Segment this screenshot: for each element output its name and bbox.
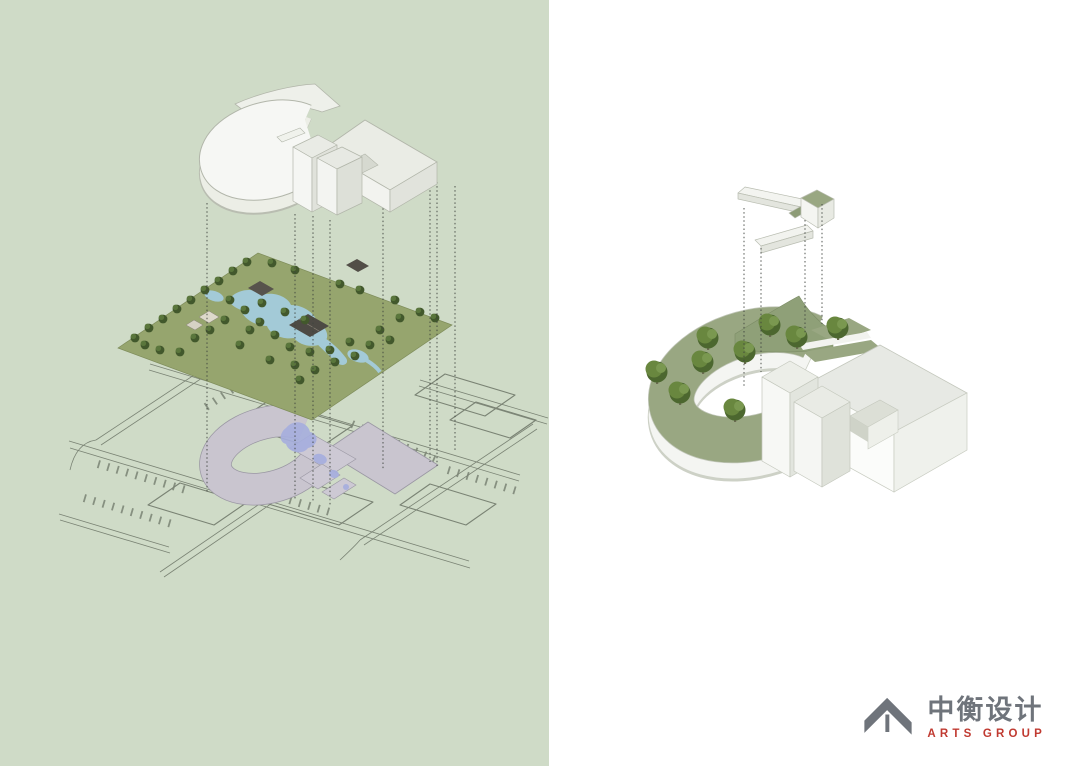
presentation-slide: 中衡设计 ARTS GROUP <box>0 0 1080 766</box>
roof-arrow-icon <box>860 690 916 746</box>
upper-building-massing <box>215 84 437 215</box>
logo-company-name: 中衡设计 <box>927 696 1046 724</box>
logo-text: 中衡设计 ARTS GROUP <box>927 696 1046 739</box>
exploded-axonometric-svg <box>0 0 549 766</box>
logo-company-subtitle: ARTS GROUP <box>927 728 1046 740</box>
roof-connector-element <box>738 187 834 253</box>
company-logo: 中衡设计 ARTS GROUP <box>860 690 1046 746</box>
garden-layer <box>118 253 452 420</box>
left-diagram-panel <box>0 0 549 766</box>
green-roof-building <box>646 296 968 492</box>
roof-garden-axonometric-svg <box>549 0 1080 766</box>
right-diagram-panel: 中衡设计 ARTS GROUP <box>549 0 1080 766</box>
